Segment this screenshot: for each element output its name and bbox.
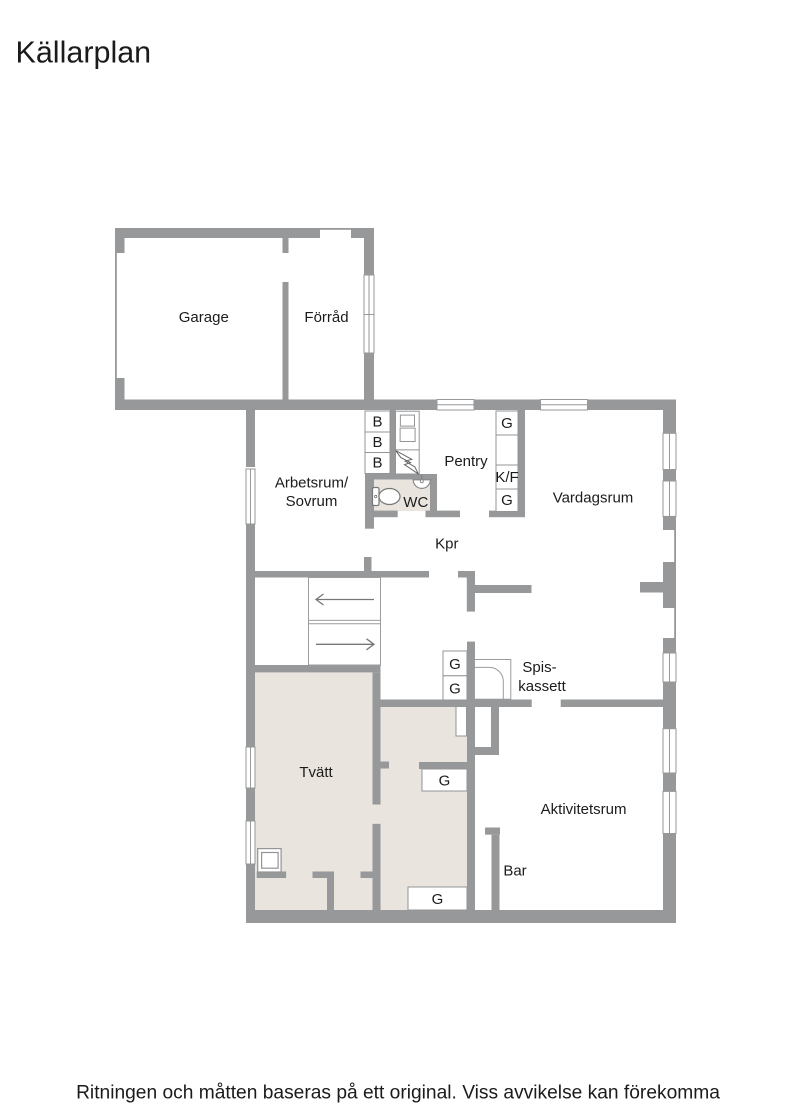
svg-text:Källarplan: Källarplan <box>16 36 152 70</box>
svg-text:G: G <box>501 415 513 432</box>
svg-text:Förråd: Förråd <box>304 309 348 326</box>
svg-text:WC: WC <box>403 494 428 511</box>
svg-text:B: B <box>372 434 382 451</box>
svg-text:Arbetsrum/: Arbetsrum/ <box>275 475 349 492</box>
svg-text:B: B <box>372 414 382 431</box>
svg-text:B: B <box>372 455 382 472</box>
svg-text:Garage: Garage <box>179 309 229 326</box>
svg-text:G: G <box>439 773 451 790</box>
svg-text:Ritningen och måtten baseras p: Ritningen och måtten baseras på ett orig… <box>76 1083 720 1104</box>
svg-text:Sovrum: Sovrum <box>286 493 338 510</box>
svg-text:G: G <box>449 680 461 697</box>
svg-text:Pentry: Pentry <box>444 453 488 470</box>
svg-text:Spis-: Spis- <box>522 659 556 676</box>
svg-text:Bar: Bar <box>503 863 526 880</box>
svg-text:G: G <box>432 891 444 908</box>
svg-text:Tvätt: Tvätt <box>299 764 333 781</box>
svg-text:G: G <box>501 492 513 509</box>
svg-text:Vardagsrum: Vardagsrum <box>553 490 634 507</box>
svg-text:Aktivitetsrum: Aktivitetsrum <box>541 801 627 818</box>
svg-text:K/F: K/F <box>495 469 518 486</box>
svg-text:G: G <box>449 656 461 673</box>
svg-text:Kpr: Kpr <box>435 536 458 553</box>
svg-text:kassett: kassett <box>518 678 566 695</box>
